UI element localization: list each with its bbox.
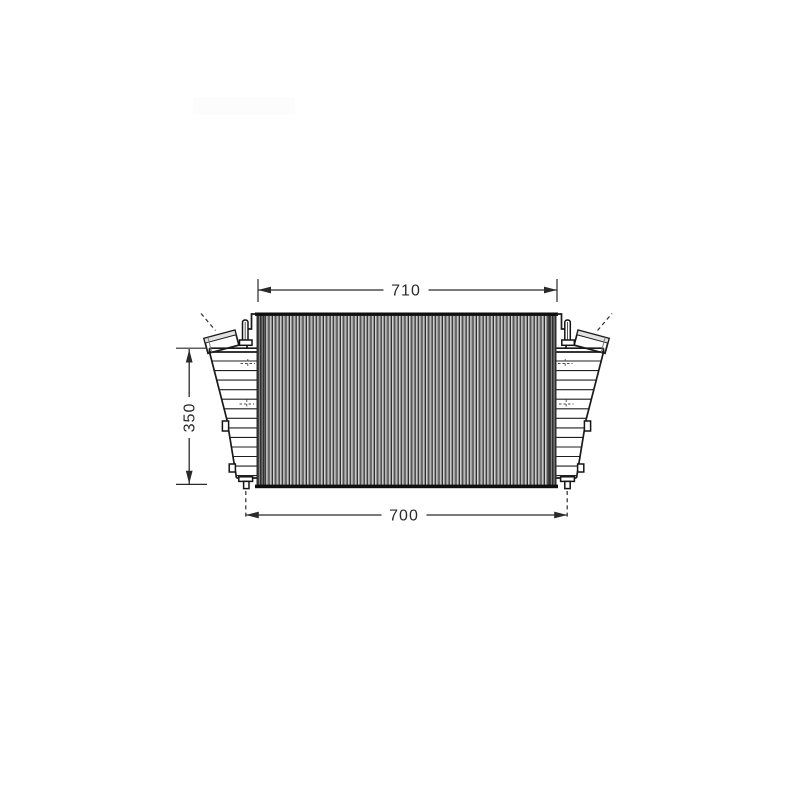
core-top-edge: [255, 313, 558, 316]
left-tank-clip-lower: [229, 464, 235, 472]
top-width-label: 710: [391, 283, 421, 300]
bottom-left-pin: [239, 477, 253, 489]
core-bottom-edge: [255, 485, 558, 489]
left-pipe-axis-dashed-line: [201, 314, 216, 331]
dimension-top-width: 710: [258, 279, 557, 302]
left-dim-arrow-top: [186, 350, 193, 363]
top-dim-arrow-left: [258, 287, 271, 294]
left-height-label: 350: [182, 403, 199, 433]
right-tank-edge: [577, 348, 604, 478]
core: [255, 313, 558, 489]
top-left-pin: [240, 320, 253, 345]
bottom-dim-arrow-left: [246, 512, 259, 519]
right-pipe-axis-dashed-line: [598, 314, 613, 331]
left-dim-arrow-bottom: [186, 471, 193, 484]
left-tank-center-marks: [240, 359, 256, 409]
right-tank-center-marks: [558, 359, 574, 409]
bottom-width-label: 700: [389, 508, 419, 525]
top-dim-arrow-right: [544, 287, 557, 294]
core-right-header-band: [549, 316, 557, 486]
diagram-canvas: 710 700 350: [0, 0, 800, 800]
left-tank-clip-upper: [222, 421, 228, 431]
right-tank-clip-upper: [584, 421, 590, 431]
dimension-bottom-width: 700: [246, 491, 567, 525]
bottom-right-pin: [561, 477, 575, 489]
top-right-pin: [562, 320, 575, 345]
left-tank-edge: [210, 348, 237, 478]
core-left-header-band: [257, 316, 265, 486]
bottom-dim-arrow-right: [554, 512, 567, 519]
dimension-left-height: 350: [176, 348, 207, 484]
right-tank-clip-lower: [578, 464, 584, 472]
intercooler-drawing: 710 700 350: [0, 0, 800, 800]
core-fins: [257, 316, 557, 486]
